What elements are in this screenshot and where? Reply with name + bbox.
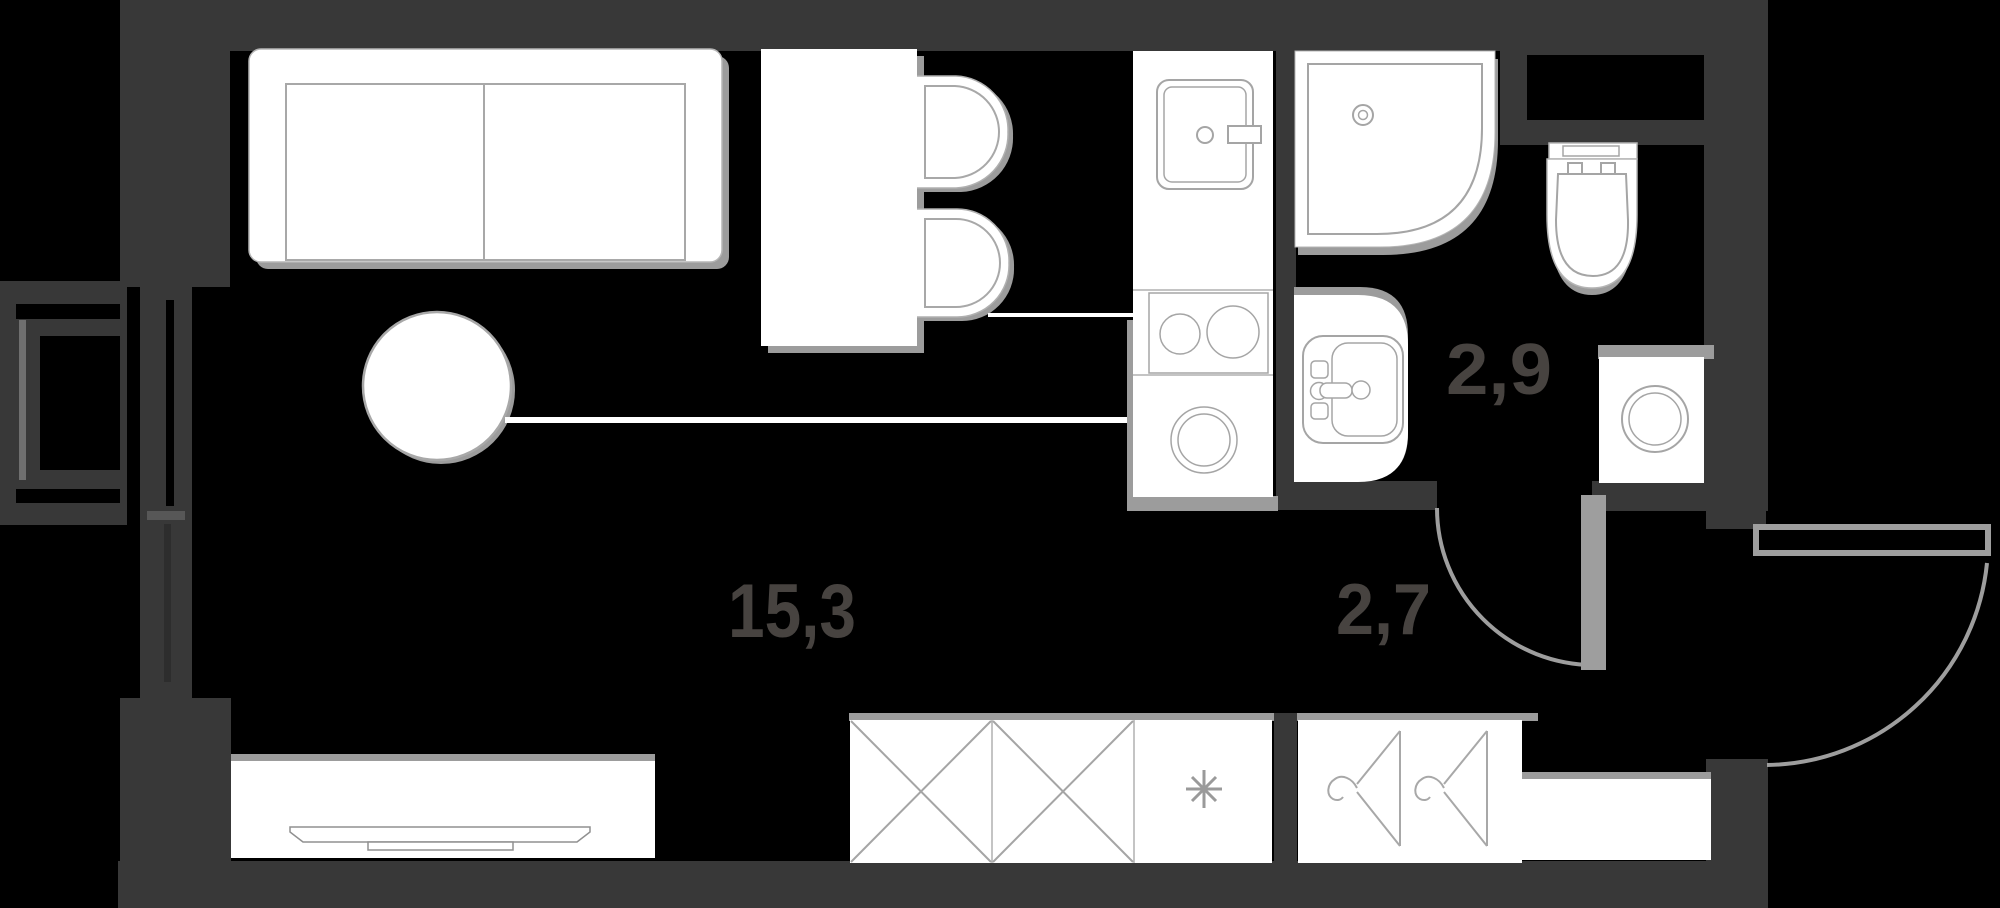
svg-text:2,9: 2,9 <box>1446 330 1552 410</box>
svg-text:15,3: 15,3 <box>728 569 856 654</box>
svg-text:2,7: 2,7 <box>1336 570 1431 650</box>
